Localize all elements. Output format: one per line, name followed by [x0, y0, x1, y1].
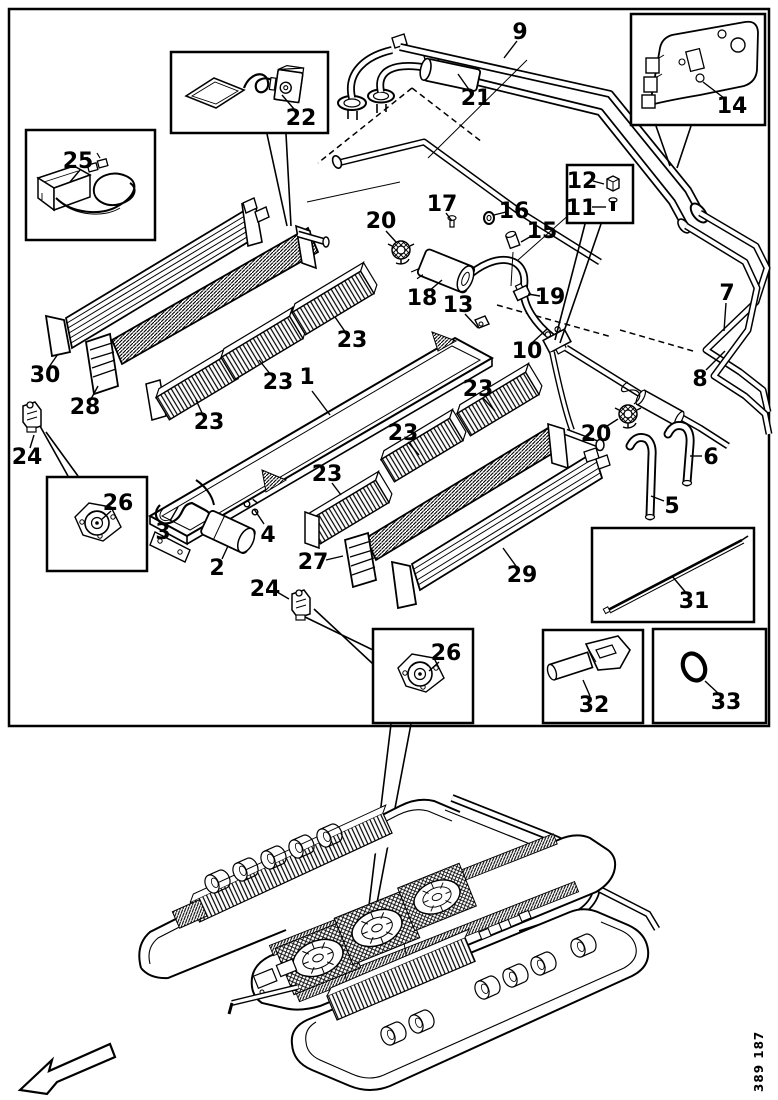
leader-line-1-0	[312, 391, 330, 415]
callout-14-13: 14	[717, 94, 748, 119]
callout-25-31: 25	[63, 149, 94, 174]
drain-hoses-5-6	[630, 426, 692, 520]
leader-line-27-34	[326, 556, 343, 560]
callout-21-21: 21	[461, 86, 492, 111]
callout-1-0: 1	[299, 365, 314, 390]
leader-line-4-3	[254, 509, 264, 524]
callout-9-8: 9	[512, 20, 527, 45]
inset-box-33	[653, 629, 766, 723]
callout-5-4: 5	[664, 494, 679, 519]
callout-28-35: 28	[70, 395, 101, 420]
figure-code: 389 187	[752, 1031, 766, 1092]
callout-24-30: 24	[250, 577, 281, 602]
callout-26-33: 26	[431, 641, 462, 666]
callout-23-23: 23	[337, 328, 368, 353]
callout-26-32: 26	[103, 491, 134, 516]
callout-3-2: 3	[155, 520, 170, 545]
callout-8-7: 8	[692, 367, 707, 392]
callout-23-25: 23	[194, 410, 225, 435]
callout-31-38: 31	[679, 589, 710, 614]
callout-23-28: 23	[312, 462, 343, 487]
assembled-unit	[139, 798, 657, 1090]
callout-24-29: 24	[12, 445, 43, 470]
callout-20-20: 20	[581, 422, 612, 447]
callout-32-39: 32	[579, 693, 610, 718]
callout-4-3: 4	[260, 523, 275, 548]
manual-page: 389 187 12345678910111213141516171819202…	[0, 0, 778, 1100]
callout-29-36: 29	[507, 563, 538, 588]
callout-23-24: 23	[263, 370, 294, 395]
callout-2-1: 2	[209, 556, 224, 581]
callout-23-27: 23	[388, 421, 419, 446]
callout-17-16: 17	[427, 192, 458, 217]
inset-boxes	[26, 14, 766, 723]
right-pipes-7-8	[686, 213, 769, 434]
hinge-24a	[23, 402, 41, 432]
callout-18-17: 18	[407, 286, 438, 311]
callout-13-12: 13	[443, 293, 474, 318]
callout-11-10: 11	[566, 196, 597, 221]
callout-10-9: 10	[512, 339, 543, 364]
callout-23-26: 23	[463, 377, 494, 402]
hinge-24b	[292, 590, 310, 620]
callout-7-6: 7	[719, 281, 734, 306]
direction-arrow-icon	[20, 1044, 115, 1094]
exploded-parts-diagram: 389 187 12345678910111213141516171819202…	[0, 0, 778, 1100]
callout-12-11: 12	[567, 169, 598, 194]
callout-6-5: 6	[703, 445, 718, 470]
suction-pipe	[331, 142, 600, 262]
callout-30-37: 30	[30, 363, 61, 388]
bolt-12-glyph	[607, 176, 619, 191]
callout-19-18: 19	[535, 285, 566, 310]
callout-27-34: 27	[298, 550, 329, 575]
callout-33-40: 33	[711, 690, 742, 715]
callout-22-22: 22	[286, 106, 317, 131]
callout-16-15: 16	[499, 199, 530, 224]
callout-15-14: 15	[527, 219, 558, 244]
callout-20-19: 20	[366, 209, 397, 234]
